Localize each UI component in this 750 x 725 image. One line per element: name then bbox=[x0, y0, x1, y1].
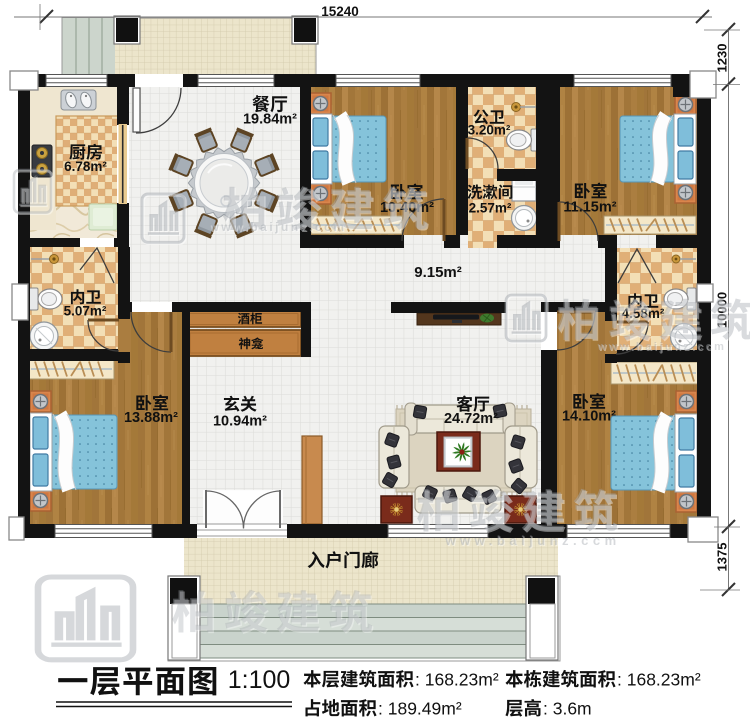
svg-text:6.78m²: 6.78m² bbox=[64, 159, 107, 174]
svg-text:11.15m²: 11.15m² bbox=[563, 200, 616, 216]
svg-text:3.20m²: 3.20m² bbox=[468, 123, 511, 138]
svg-text:13.88m²: 13.88m² bbox=[124, 410, 178, 426]
svg-text:15240: 15240 bbox=[321, 4, 359, 19]
svg-text:www.baijunz.ccm: www.baijunz.ccm bbox=[597, 341, 727, 353]
svg-text:1375: 1375 bbox=[715, 543, 730, 572]
svg-text:www.baijunz.ccm: www.baijunz.ccm bbox=[444, 533, 620, 548]
svg-text:: 3.6m: : 3.6m bbox=[543, 699, 592, 719]
svg-text:2.57m²: 2.57m² bbox=[469, 201, 512, 216]
svg-text:19.84m²: 19.84m² bbox=[243, 112, 297, 128]
svg-text:5.07m²: 5.07m² bbox=[64, 304, 107, 319]
svg-text:10.94m²: 10.94m² bbox=[213, 414, 267, 430]
svg-text:1:100: 1:100 bbox=[228, 666, 291, 694]
svg-text:9.15m²: 9.15m² bbox=[414, 264, 462, 281]
svg-text:: 168.23m²: : 168.23m² bbox=[415, 670, 499, 690]
svg-text:: 189.49m²: : 189.49m² bbox=[378, 699, 462, 719]
svg-text:www.baijunz.ccm: www.baijunz.ccm bbox=[208, 220, 346, 234]
svg-text:：: ： bbox=[0, 0, 1, 1]
svg-text:14.10m²: 14.10m² bbox=[562, 409, 616, 425]
svg-text:1230: 1230 bbox=[715, 44, 730, 73]
svg-text:24.72m²: 24.72m² bbox=[444, 411, 498, 427]
svg-text:: 168.23m²: : 168.23m² bbox=[617, 670, 701, 690]
